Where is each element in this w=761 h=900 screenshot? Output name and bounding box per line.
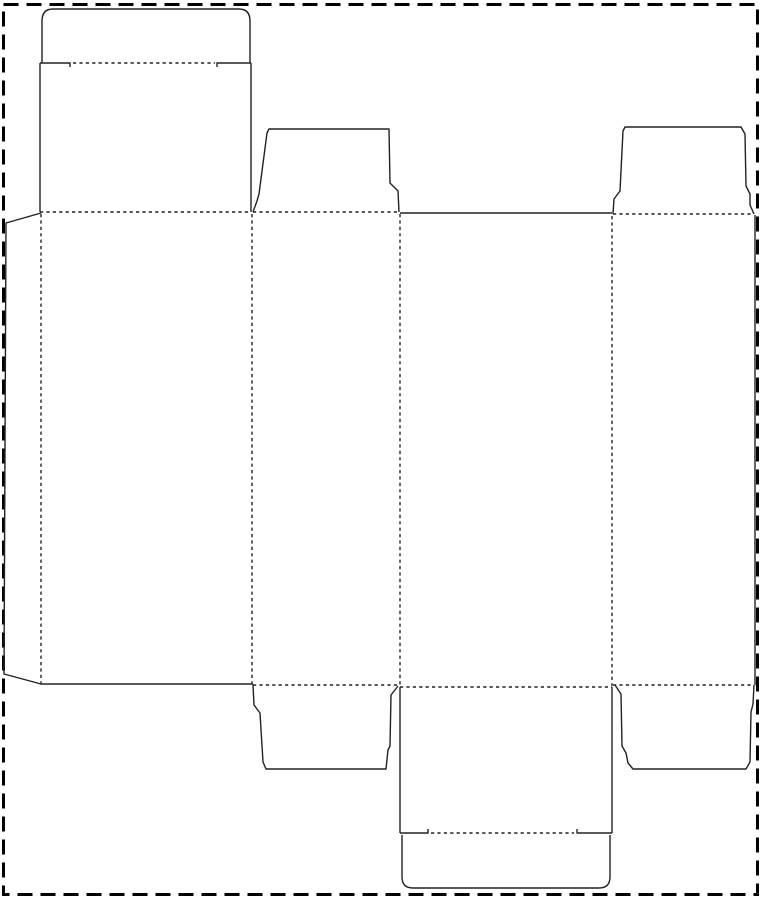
dieline-page xyxy=(0,0,761,900)
dieline-drawing xyxy=(0,0,761,900)
sheet-background xyxy=(0,0,761,900)
